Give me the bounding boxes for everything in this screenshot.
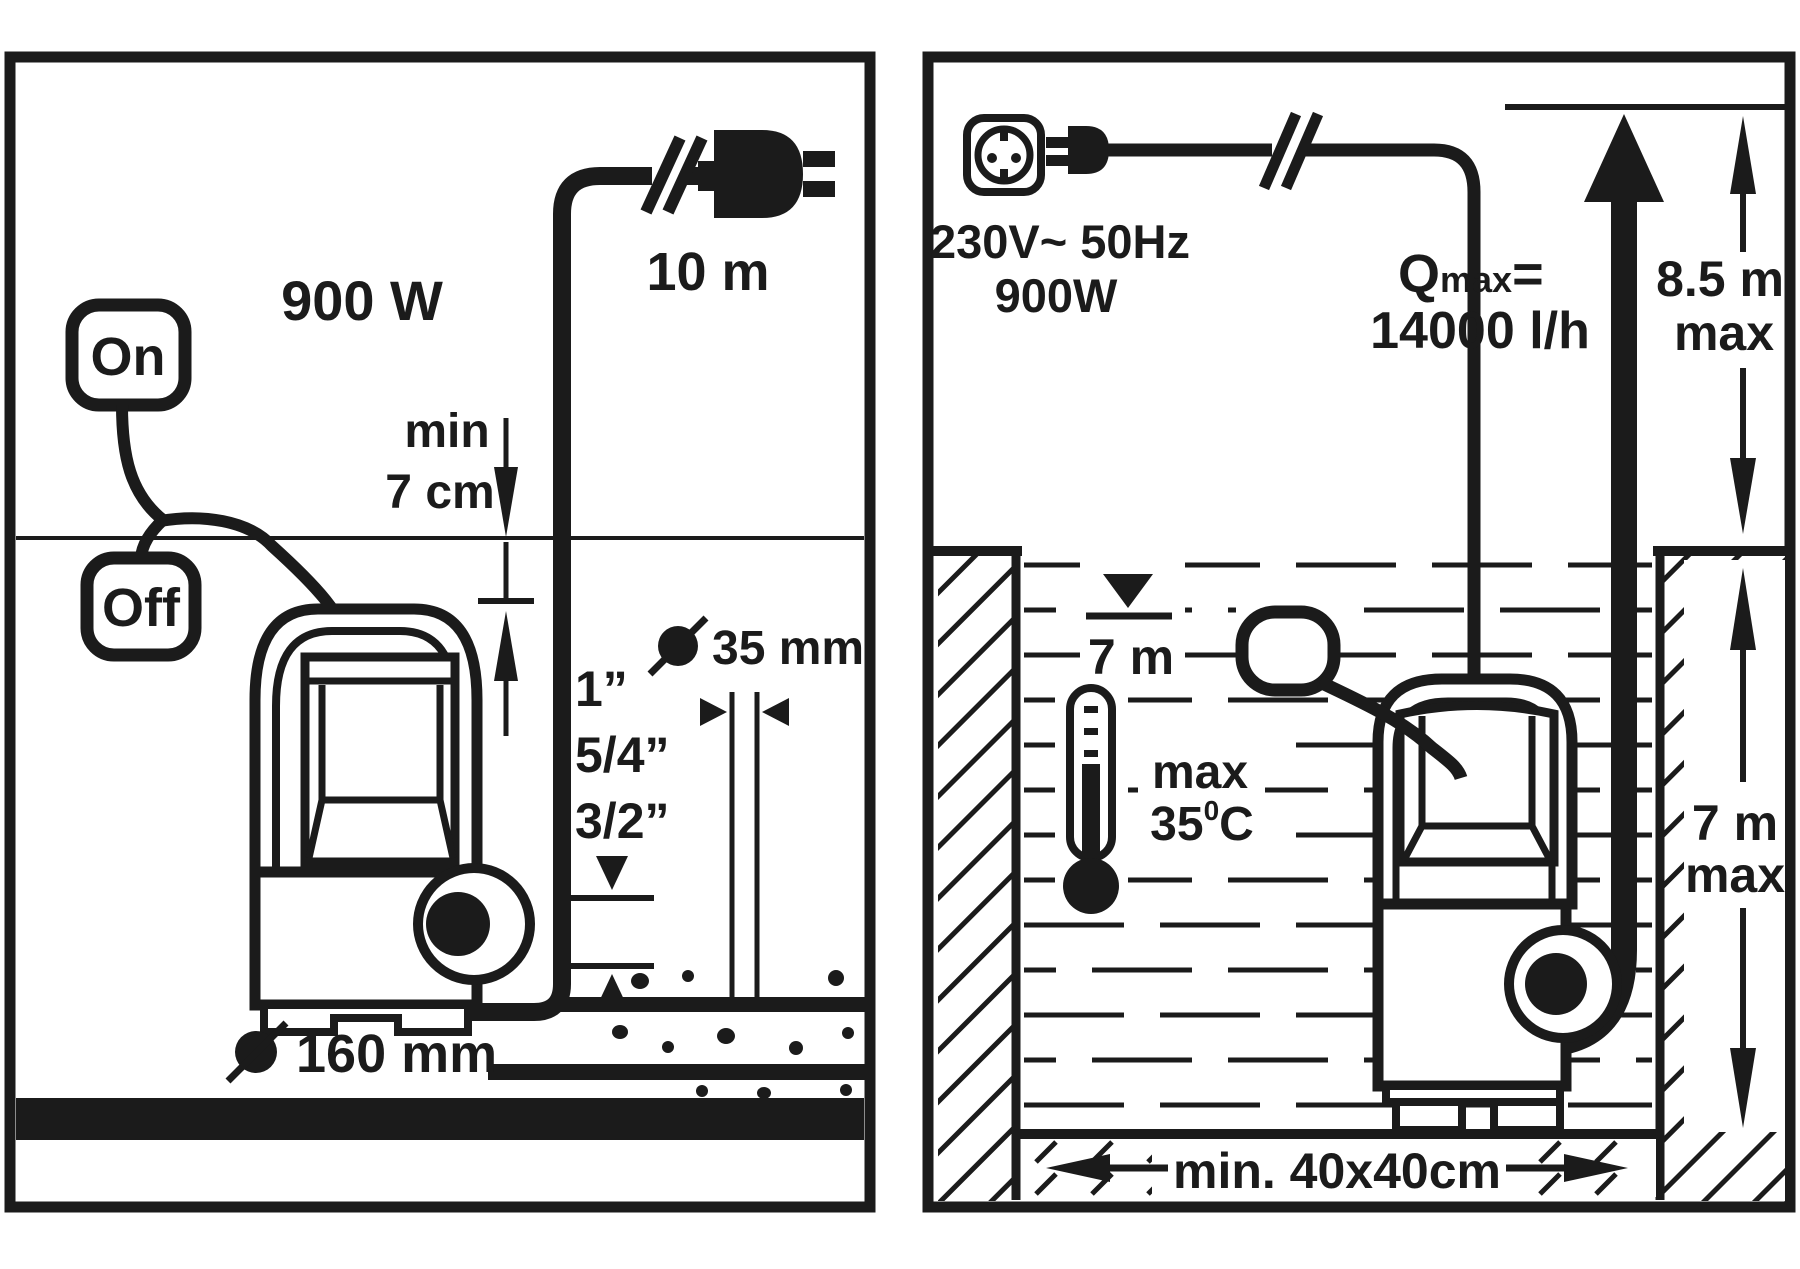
pebble	[717, 1028, 735, 1044]
pebble	[682, 970, 694, 982]
switch-off-label: Off	[102, 578, 181, 638]
power-label: 900 W	[281, 269, 443, 332]
right-panel: min. 40x40cm 230V~ 50Hz 900W Qmax= 14000…	[928, 57, 1790, 1207]
outlet-port	[1525, 953, 1587, 1015]
temp-value: 350C	[1150, 795, 1254, 851]
thermometer-icon	[1055, 682, 1128, 922]
pit-floor: min. 40x40cm	[1016, 1134, 1660, 1199]
diagram-canvas: 10 m 900 W On Off min 7 cm	[0, 0, 1800, 1269]
min-label: min	[404, 405, 489, 458]
power-label: 900W	[995, 269, 1118, 322]
max-temp: max 350C	[1138, 730, 1265, 852]
pump-foot	[1494, 1102, 1560, 1130]
pebble	[696, 1085, 708, 1097]
pebble	[612, 1025, 628, 1039]
float-switch-off: Off	[87, 558, 195, 655]
min-pit-size-label: min. 40x40cm	[1173, 1143, 1501, 1199]
schuko-socket-icon	[967, 118, 1041, 192]
pebble	[828, 970, 844, 986]
hose-diameter-label: 35 mm	[712, 622, 864, 675]
max-head-suffix: max	[1674, 305, 1774, 361]
thread-32: 3/2”	[575, 793, 670, 849]
outlet-port	[426, 892, 490, 956]
pit-diameter-label: 160 mm	[296, 1024, 497, 1084]
switch-on-label: On	[91, 327, 166, 387]
water-level-icon: 7 m	[1080, 556, 1185, 685]
pebble	[631, 973, 649, 989]
left-panel: 10 m 900 W On Off min 7 cm	[10, 57, 870, 1207]
qmax-value: 14000 l/h	[1370, 302, 1590, 360]
min-value: 7 cm	[385, 466, 494, 519]
float-switch-on: On	[72, 305, 185, 405]
pump-top-box	[305, 657, 455, 862]
thread-54: 5/4”	[575, 727, 670, 783]
temp-label: max	[1152, 746, 1248, 799]
voltage-label: 230V~ 50Hz	[930, 215, 1190, 268]
pebble	[789, 1041, 803, 1055]
pebble	[840, 1084, 852, 1096]
cable-length-label: 10 m	[646, 242, 769, 302]
thread-1: 1”	[575, 661, 628, 717]
water-level-label: 7 m	[1088, 629, 1174, 685]
max-head-value: 8.5 m	[1656, 251, 1784, 307]
max-depth-value: 7 m	[1692, 795, 1778, 851]
pebble	[757, 1087, 771, 1099]
floor-bar	[16, 1098, 864, 1140]
pump-spec-diagram: 10 m 900 W On Off min 7 cm	[0, 0, 1800, 1269]
pebble	[662, 1041, 674, 1053]
pebble	[842, 1027, 854, 1039]
pump-foot	[1396, 1102, 1462, 1130]
max-depth-suffix: max	[1685, 847, 1785, 903]
left-wall	[938, 553, 1018, 1201]
